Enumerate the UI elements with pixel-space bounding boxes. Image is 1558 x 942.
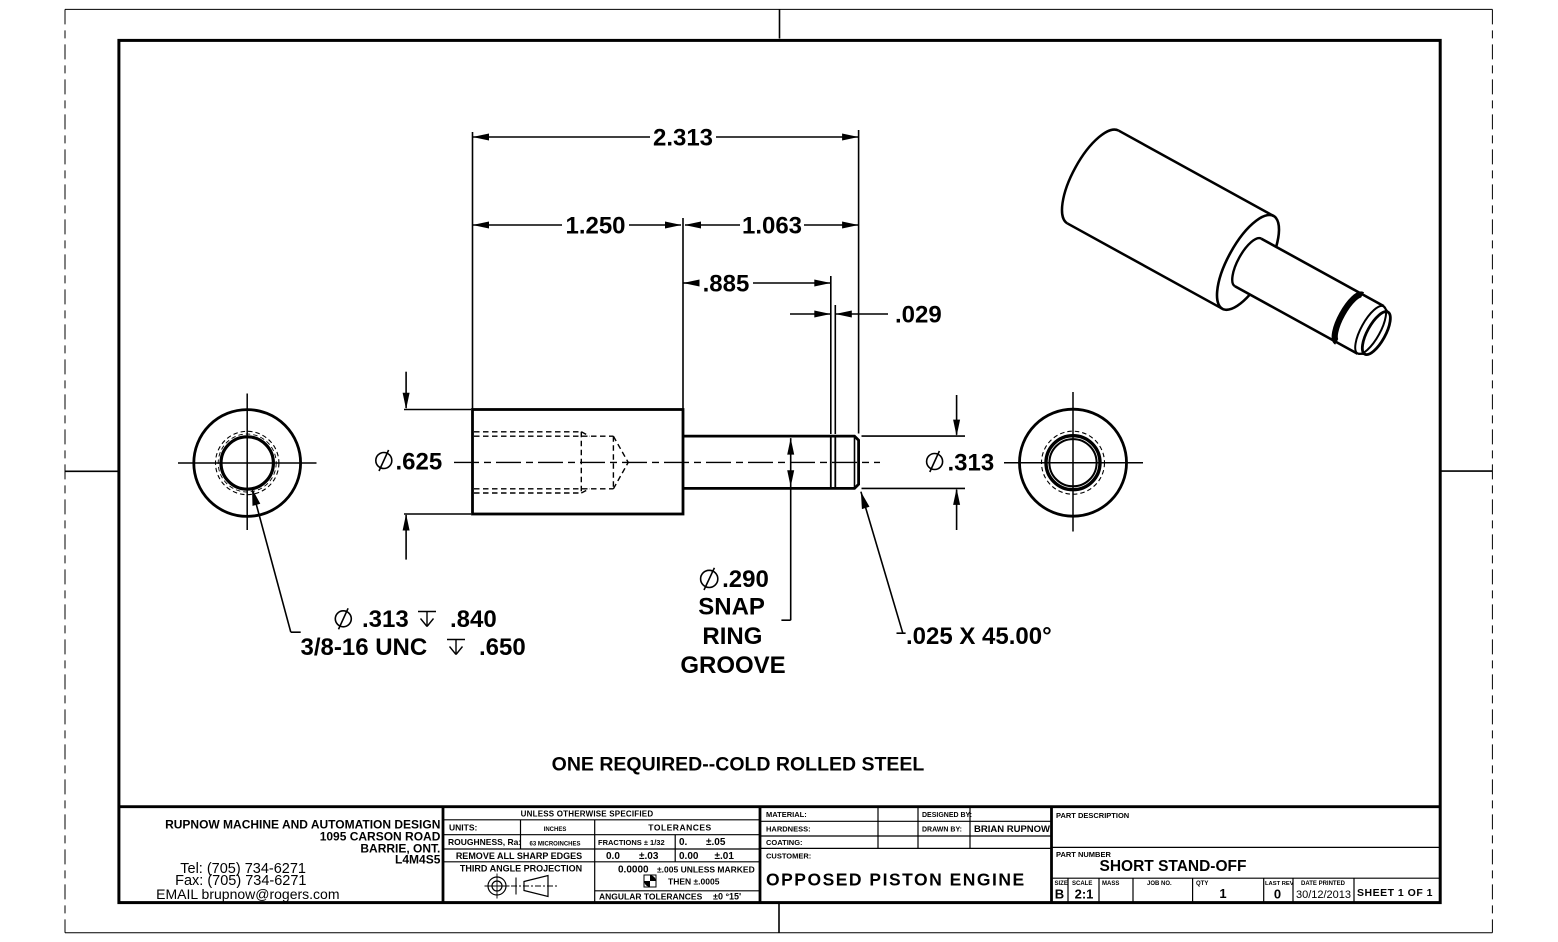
- svg-text:0.: 0.: [679, 837, 688, 848]
- svg-text:UNITS:: UNITS:: [449, 823, 478, 833]
- svg-text:B: B: [1055, 887, 1064, 902]
- svg-text:0.0: 0.0: [606, 851, 620, 862]
- svg-text:MASS: MASS: [1102, 881, 1119, 887]
- svg-text:UNLESS OTHERWISE SPECIFIED: UNLESS OTHERWISE SPECIFIED: [521, 810, 654, 819]
- svg-text:.313: .313: [362, 606, 409, 633]
- svg-text:DESIGNED BY:: DESIGNED BY:: [922, 812, 972, 819]
- svg-text:PART DESCRIPTION: PART DESCRIPTION: [1056, 811, 1129, 820]
- svg-text:ANGULAR TOLERANCES: ANGULAR TOLERANCES: [599, 892, 703, 902]
- svg-text:±.05: ±.05: [706, 837, 726, 848]
- svg-text:.029: .029: [895, 301, 942, 328]
- svg-text:TOLERANCES: TOLERANCES: [648, 823, 711, 833]
- svg-text:BRIAN RUPNOW: BRIAN RUPNOW: [974, 824, 1050, 835]
- svg-text:SNAP: SNAP: [698, 593, 765, 620]
- svg-text:INCHES: INCHES: [544, 827, 567, 833]
- svg-text:DRAWN BY:: DRAWN BY:: [922, 827, 962, 834]
- svg-text:L4M4S5: L4M4S5: [395, 852, 441, 866]
- svg-text:ROUGHNESS, Ra:: ROUGHNESS, Ra:: [448, 837, 521, 847]
- svg-text:.650: .650: [479, 634, 526, 661]
- svg-text:MATERIAL:: MATERIAL:: [766, 810, 807, 819]
- svg-text:1.063: 1.063: [742, 212, 802, 239]
- svg-text:DATE PRINTED: DATE PRINTED: [1301, 881, 1346, 887]
- svg-text:.625: .625: [396, 449, 443, 476]
- svg-text:.885: .885: [703, 270, 750, 297]
- svg-text:2.313: 2.313: [653, 124, 713, 151]
- svg-text:0.0000: 0.0000: [618, 864, 649, 875]
- svg-text:HARDNESS:: HARDNESS:: [766, 825, 811, 834]
- svg-text:±0 °15': ±0 °15': [713, 892, 741, 902]
- svg-text:COATING:: COATING:: [766, 838, 803, 847]
- svg-text:2:1: 2:1: [1075, 887, 1094, 902]
- svg-text:JOB NO.: JOB NO.: [1147, 881, 1172, 887]
- svg-text:OPPOSED PISTON ENGINE: OPPOSED PISTON ENGINE: [766, 870, 1026, 890]
- svg-text:±.01: ±.01: [715, 851, 735, 862]
- svg-text:SHORT STAND-OFF: SHORT STAND-OFF: [1100, 858, 1247, 875]
- svg-text:1.250: 1.250: [565, 212, 625, 239]
- svg-text:±.005 UNLESS MARKED: ±.005 UNLESS MARKED: [657, 864, 755, 874]
- svg-text:0.00: 0.00: [679, 851, 699, 862]
- svg-text:SHEET 1 OF 1: SHEET 1 OF 1: [1357, 887, 1433, 899]
- svg-text:0: 0: [1274, 887, 1281, 902]
- svg-text:QTY: QTY: [1196, 881, 1208, 887]
- svg-text:63 MICROINCHES: 63 MICROINCHES: [529, 841, 580, 847]
- svg-text:.290: .290: [722, 566, 769, 593]
- svg-text:THEN ±.0005: THEN ±.0005: [668, 877, 720, 887]
- svg-text:.025 X 45.00°: .025 X 45.00°: [906, 623, 1052, 650]
- svg-text:.840: .840: [450, 606, 497, 633]
- svg-text:GROOVE: GROOVE: [680, 652, 785, 679]
- svg-text:EMAIL brupnow@rogers.com: EMAIL brupnow@rogers.com: [156, 886, 339, 902]
- svg-text:THIRD ANGLE PROJECTION: THIRD ANGLE PROJECTION: [460, 863, 582, 873]
- svg-text:FRACTIONS ± 1/32: FRACTIONS ± 1/32: [598, 838, 665, 847]
- svg-text:REMOVE ALL SHARP EDGES: REMOVE ALL SHARP EDGES: [456, 851, 582, 861]
- svg-text:30/12/2013: 30/12/2013: [1296, 889, 1351, 901]
- svg-text:RING: RING: [702, 623, 762, 650]
- svg-text:1: 1: [1219, 886, 1226, 901]
- svg-text:±.03: ±.03: [639, 851, 659, 862]
- svg-text:CUSTOMER:: CUSTOMER:: [766, 852, 811, 861]
- svg-text:.313: .313: [948, 450, 995, 477]
- svg-text:ONE REQUIRED--COLD ROLLED STEE: ONE REQUIRED--COLD ROLLED STEEL: [552, 753, 925, 775]
- svg-text:3/8-16 UNC: 3/8-16 UNC: [301, 634, 428, 661]
